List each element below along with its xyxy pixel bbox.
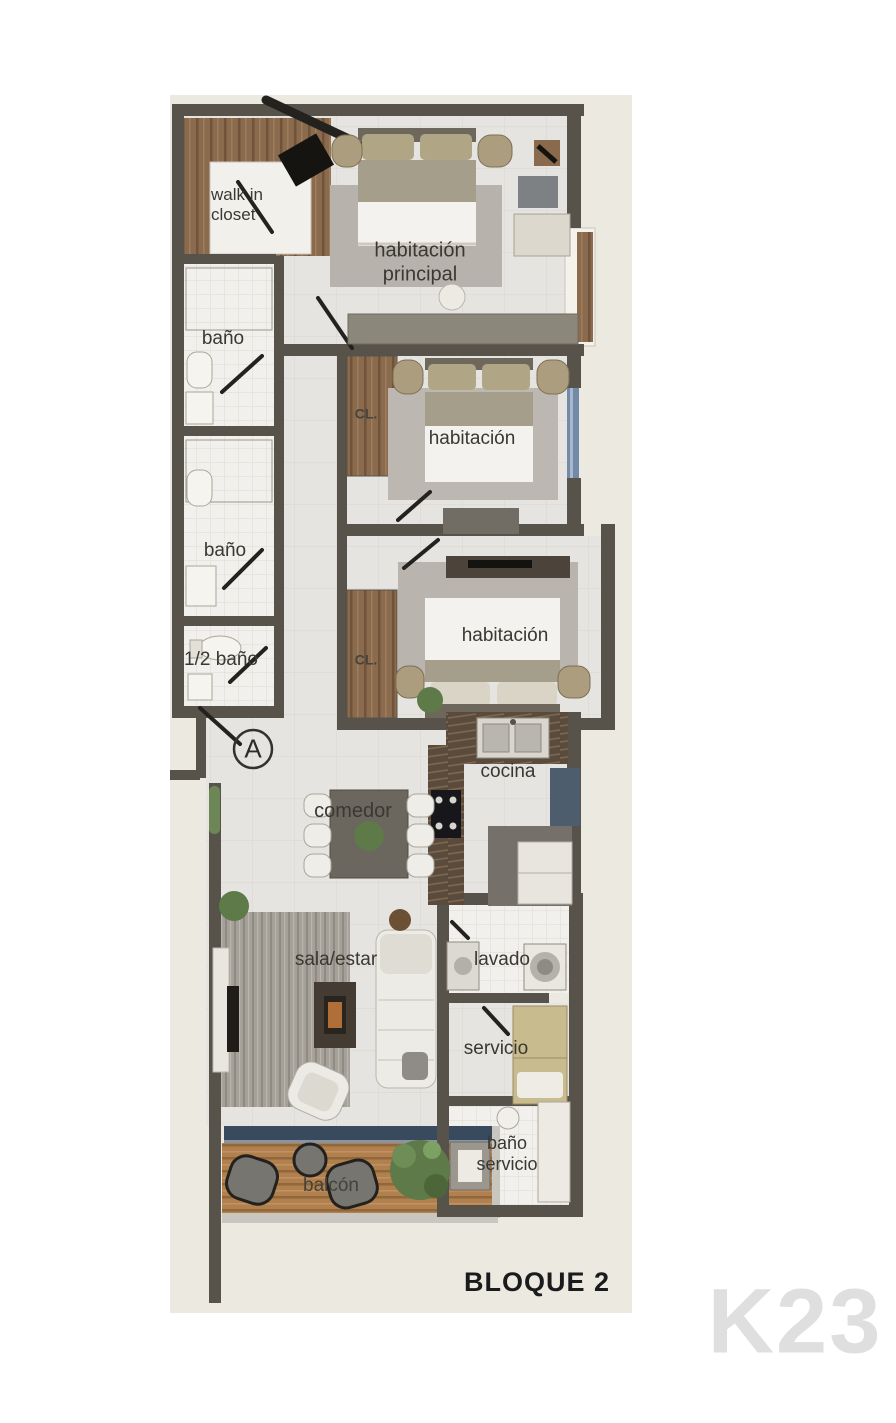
dresser-2 [443,508,519,534]
dining-set [304,790,434,878]
floor-plan-drawing [0,0,896,1423]
white-unit [514,214,570,256]
plant [417,687,443,713]
wardrobe-console [348,314,578,344]
chair [537,360,569,394]
chair [558,666,590,698]
stove [431,790,461,838]
pouf [439,284,465,310]
floor-plan-canvas: walk in closet habitación principal baño… [0,0,896,1423]
service-bed [513,1006,567,1104]
sofa [376,930,436,1088]
gray-cube [518,176,558,208]
fireplace-table [314,982,356,1048]
side-table [389,909,411,931]
tall-cabinet [550,768,580,826]
bedside-chair-left [332,135,362,167]
chair [393,360,423,394]
tv-shelf [213,948,229,1072]
tv-sala [227,986,239,1052]
bedside-chair-right [478,135,512,167]
hedge [209,786,220,834]
plant [219,891,249,921]
tv-3 [468,560,532,568]
